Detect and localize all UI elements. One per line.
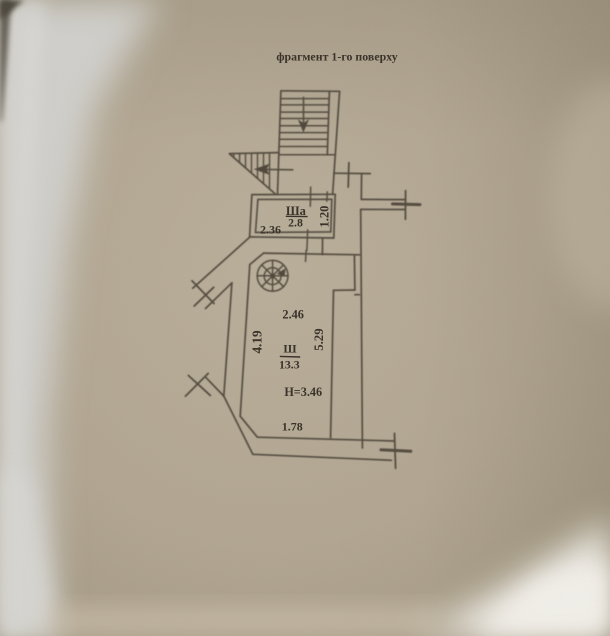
svg-text:4.19: 4.19 (250, 330, 265, 353)
svg-text:фрагмент 1-го поверху: фрагмент 1-го поверху (276, 49, 397, 63)
svg-text:1.78: 1.78 (282, 420, 303, 434)
svg-text:5.29: 5.29 (312, 328, 326, 350)
svg-text:2.46: 2.46 (282, 307, 304, 321)
svg-text:Ш: Ш (283, 342, 296, 356)
svg-text:1.20: 1.20 (318, 206, 332, 228)
svg-text:13.3: 13.3 (279, 357, 300, 371)
svg-text:Н=3.46: Н=3.46 (284, 385, 322, 399)
svg-text:2.36: 2.36 (260, 222, 281, 236)
svg-text:2.8: 2.8 (288, 215, 303, 229)
